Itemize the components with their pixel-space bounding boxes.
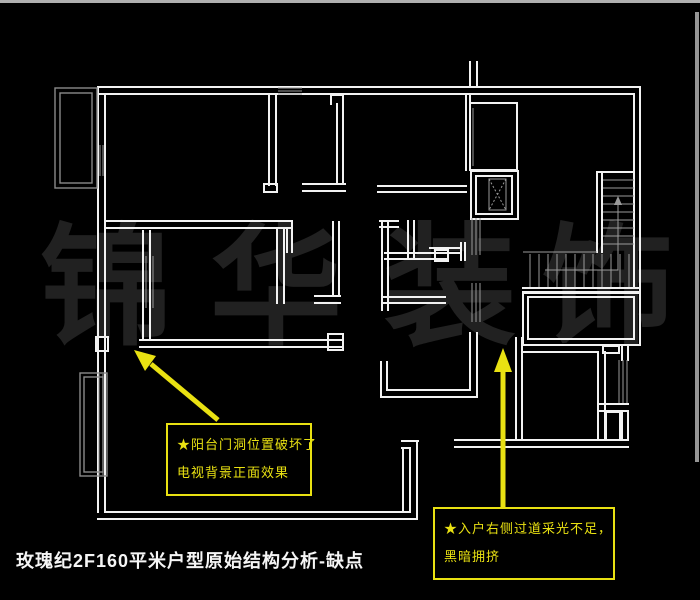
callout-entry-corridor: ★入户右侧过道采光不足， 黑暗拥挤 (433, 507, 615, 580)
page-title: 玫瑰纪2F160平米户型原始结构分析-缺点 (16, 547, 364, 573)
canvas-top-border (0, 0, 700, 3)
callout-text: ★阳台门洞位置破坏了 (177, 431, 301, 459)
annotation-arrow-corridor (494, 348, 512, 507)
elevator-shaft (470, 103, 518, 219)
bathroom-walls (523, 292, 640, 345)
callout-balcony-door: ★阳台门洞位置破坏了 电视背景正面效果 (166, 423, 312, 496)
elevator-x-mark (489, 179, 506, 210)
canvas-right-border (695, 12, 699, 462)
callout-text: ★入户右侧过道采光不足， (444, 515, 604, 543)
callout-text: 电视背景正面效果 (177, 459, 301, 487)
staircase (523, 180, 634, 287)
callout-text: 黑暗拥挤 (444, 543, 604, 571)
annotation-arrow-balcony (134, 350, 218, 420)
stair-direction-arrow (614, 196, 622, 205)
floor-plan-canvas: 锦 华 装 饰 (0, 0, 700, 600)
